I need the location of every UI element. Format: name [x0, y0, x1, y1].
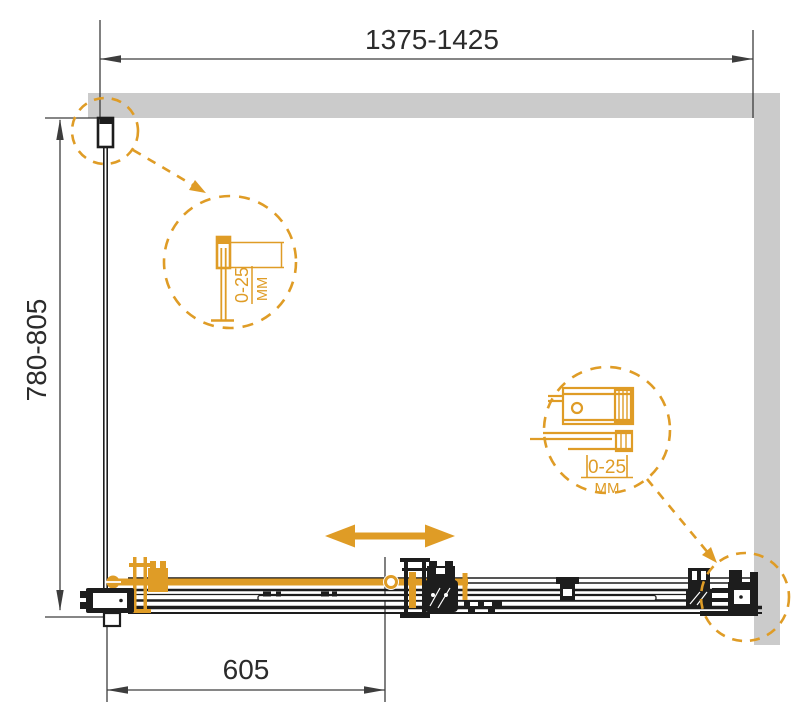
center-housing-pin-2: [444, 593, 448, 597]
door-width-label: 605: [223, 654, 270, 685]
hardware: [80, 118, 758, 626]
corner-base-bar: [700, 611, 756, 616]
door-clip-2: [276, 592, 281, 597]
left-bracket-tab-2: [160, 561, 166, 569]
center-guide-foot-1: [468, 608, 475, 613]
double-arrow-shaft: [353, 533, 427, 540]
corner-roller-notch-2: [701, 571, 706, 580]
center-frame-foot: [400, 614, 430, 618]
left-bracket-crossbar: [129, 563, 151, 567]
center-guide-bar: [464, 600, 502, 608]
arrowhead-door-right-icon: [364, 686, 385, 693]
center-housing-pin-1: [431, 593, 435, 597]
right-wall: [754, 93, 780, 645]
arrowhead-down-icon: [56, 590, 63, 611]
center-frame-top: [400, 558, 430, 562]
callout-labels: 0-25 MM 0-25 MM: [232, 267, 626, 497]
corner-roller-notch-1: [692, 571, 697, 580]
center-guide-slot-2: [484, 602, 492, 606]
right-hanger-slot: [563, 589, 572, 596]
center-roller-housing: [424, 580, 458, 612]
center-guide-slot-1: [470, 602, 478, 606]
slider-bar-end-stop: [463, 573, 468, 600]
arrowhead-up-icon: [56, 119, 63, 140]
detail1-unit-label: MM: [255, 277, 271, 301]
door-clip-1: [263, 592, 271, 597]
center-guide-foot-2: [488, 608, 495, 613]
left-floor-anchor: [104, 613, 120, 626]
installation-drawing: 1375-1425 780-805 605: [0, 0, 800, 725]
left-wall-bracket-pin: [119, 599, 123, 603]
rail-linework: [86, 147, 762, 613]
wall-profile-cap: [100, 119, 113, 124]
left-bracket-block: [148, 568, 168, 592]
corner-flag: [729, 570, 742, 582]
leader-dart-1-icon: [189, 180, 206, 193]
corner-roller-bracket: [688, 568, 710, 590]
left-wall-tab-2: [80, 602, 86, 609]
corner-arm-2: [712, 598, 728, 602]
corner-wall-bracket-pin: [739, 595, 743, 599]
detail2-housing-pin: [572, 403, 582, 413]
double-arrow-head-right: [425, 525, 455, 548]
right-hanger-top: [556, 577, 579, 584]
accent-overlay: 0-25 MM 0-25 MM: [72, 98, 789, 641]
detail1-range-label: 0-25: [232, 267, 252, 303]
overall-depth-label: 780-805: [21, 299, 52, 402]
center-roller-notch: [436, 568, 445, 574]
door-clip-4: [332, 592, 337, 597]
detail1-profile-cap: [217, 237, 230, 244]
corner-arm-1: [712, 588, 728, 593]
top-wall: [88, 93, 780, 118]
arrowhead-right-icon: [732, 55, 753, 62]
callout-leader-2: [647, 479, 714, 560]
double-arrow-icon: [325, 525, 455, 548]
detail2-range-label: 0-25: [588, 457, 626, 478]
detail2-unit-label: MM: [595, 480, 620, 497]
double-arrow-head-left: [325, 525, 355, 548]
arrowhead-door-left-icon: [107, 686, 128, 693]
center-frame-accent-stripe: [409, 572, 416, 608]
diagram-canvas: 1375-1425 780-805 605: [0, 0, 800, 725]
right-wall-profile: [750, 572, 758, 616]
center-frame-strut-1: [404, 558, 408, 616]
center-frame-bar: [402, 568, 428, 571]
door-clip-3: [321, 592, 329, 597]
overall-width-label: 1375-1425: [365, 24, 499, 55]
arrowhead-left-icon: [100, 55, 121, 62]
left-bracket-tab-1: [150, 561, 156, 569]
left-wall-tab-1: [80, 591, 86, 598]
